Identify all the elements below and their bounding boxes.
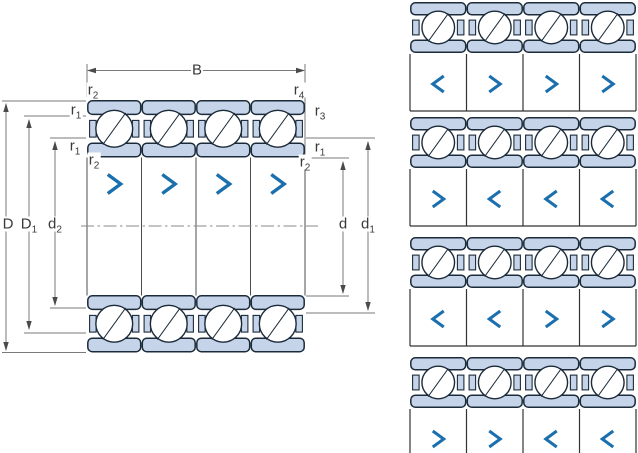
cage-section-right bbox=[457, 375, 464, 390]
bearing-unit-cross-section bbox=[467, 3, 522, 52]
bearing-drawing-svg bbox=[0, 0, 638, 453]
contact-angle-chevron-left bbox=[602, 191, 613, 207]
arrangement-row-2 bbox=[410, 118, 636, 226]
cage-section-right bbox=[627, 20, 634, 35]
contact-angle-chevron-left bbox=[546, 431, 557, 447]
contact-angle-chevron-right bbox=[271, 175, 284, 194]
cage-section-left bbox=[582, 20, 589, 35]
cage-section-right bbox=[514, 255, 521, 270]
cage-section-left bbox=[90, 120, 97, 137]
contact-angle-chevron-right bbox=[433, 191, 444, 207]
bearing-unit-cross-section bbox=[411, 238, 466, 287]
cage-section-left bbox=[526, 255, 533, 270]
cage-section-right bbox=[296, 315, 303, 332]
cage-section-left bbox=[253, 315, 260, 332]
bearing-unit-cross-section bbox=[88, 101, 141, 157]
cage-section-left bbox=[144, 315, 151, 332]
bearing-unit-cross-section bbox=[524, 3, 579, 52]
cage-section-right bbox=[457, 255, 464, 270]
arrangement-diagrams bbox=[410, 3, 636, 453]
bearing-unit-cross-section bbox=[524, 238, 579, 287]
cage-section-right bbox=[132, 315, 139, 332]
cage-section-right bbox=[457, 20, 464, 35]
cage-section-right bbox=[570, 135, 577, 150]
contact-angle-chevron-left bbox=[489, 191, 500, 207]
cage-section-right bbox=[627, 255, 634, 270]
cage-section-right bbox=[457, 135, 464, 150]
cage-section-right bbox=[570, 255, 577, 270]
contact-angle-chevron-right bbox=[217, 175, 230, 194]
cage-section-right bbox=[187, 120, 194, 137]
cage-section-right bbox=[187, 315, 194, 332]
cage-section-left bbox=[199, 120, 206, 137]
cage-section-left bbox=[469, 135, 476, 150]
contact-angle-chevron-left bbox=[433, 311, 444, 327]
arrangement-row-3 bbox=[410, 238, 636, 346]
contact-angle-chevron-right bbox=[546, 311, 557, 327]
cage-section-left bbox=[413, 375, 420, 390]
cage-section-left bbox=[582, 375, 589, 390]
cage-section-right bbox=[570, 375, 577, 390]
bearing-figure-page: { "figure": { "kind": "angular-contact-b… bbox=[0, 0, 638, 453]
bearing-unit-cross-section bbox=[88, 296, 141, 352]
contact-angle-chevron-right bbox=[546, 76, 557, 92]
bearing-unit-cross-section bbox=[467, 358, 522, 407]
arrangement-row-4 bbox=[410, 358, 636, 453]
bearing-unit-cross-section bbox=[524, 118, 579, 167]
bearing-unit-cross-section bbox=[142, 101, 195, 157]
contact-angle-chevron-right bbox=[602, 311, 613, 327]
bearing-unit-cross-section bbox=[197, 101, 250, 157]
bearing-unit-cross-section bbox=[142, 296, 195, 352]
bearing-unit-cross-section bbox=[411, 3, 466, 52]
cage-section-left bbox=[469, 20, 476, 35]
cage-section-right bbox=[627, 135, 634, 150]
bearing-unit-cross-section bbox=[580, 238, 635, 287]
contact-angle-chevron-right bbox=[602, 76, 613, 92]
bearing-unit-cross-section bbox=[411, 358, 466, 407]
cage-section-left bbox=[582, 135, 589, 150]
cage-section-left bbox=[526, 135, 533, 150]
cage-section-right bbox=[241, 315, 248, 332]
cage-section-right bbox=[570, 20, 577, 35]
cage-section-left bbox=[469, 255, 476, 270]
cage-section-left bbox=[526, 375, 533, 390]
cage-section-left bbox=[90, 315, 97, 332]
cage-section-left bbox=[413, 135, 420, 150]
contact-angle-chevron-right bbox=[162, 175, 175, 194]
contact-angle-chevron-right bbox=[433, 431, 444, 447]
bearing-unit-cross-section bbox=[580, 358, 635, 407]
cage-section-left bbox=[526, 20, 533, 35]
cage-section-left bbox=[144, 120, 151, 137]
bearing-unit-cross-section bbox=[467, 238, 522, 287]
contact-angle-chevron-left bbox=[433, 76, 444, 92]
bearing-unit-cross-section bbox=[580, 3, 635, 52]
cage-section-right bbox=[132, 120, 139, 137]
bearing-unit-cross-section bbox=[197, 296, 250, 352]
bearing-unit-cross-section bbox=[467, 118, 522, 167]
cross-section-diagram bbox=[2, 64, 375, 353]
contact-angle-chevron-right bbox=[108, 175, 121, 194]
cage-section-right bbox=[296, 120, 303, 137]
cage-section-left bbox=[253, 120, 260, 137]
cage-section-left bbox=[582, 255, 589, 270]
bearing-unit-cross-section bbox=[251, 101, 304, 157]
cage-section-left bbox=[413, 255, 420, 270]
cage-section-left bbox=[469, 375, 476, 390]
contact-angle-chevron-left bbox=[546, 191, 557, 207]
bearing-unit-cross-section bbox=[411, 118, 466, 167]
bearing-unit-cross-section bbox=[251, 296, 304, 352]
cage-section-right bbox=[514, 20, 521, 35]
cage-section-right bbox=[241, 120, 248, 137]
cage-section-left bbox=[413, 20, 420, 35]
cage-section-right bbox=[514, 375, 521, 390]
bearing-unit-cross-section bbox=[580, 118, 635, 167]
contact-angle-chevron-left bbox=[602, 431, 613, 447]
cage-section-right bbox=[627, 375, 634, 390]
bearing-unit-cross-section bbox=[524, 358, 579, 407]
contact-angle-chevron-right bbox=[489, 76, 500, 92]
contact-angle-chevron-right bbox=[489, 431, 500, 447]
cage-section-left bbox=[199, 315, 206, 332]
contact-angle-chevron-left bbox=[489, 311, 500, 327]
cage-section-right bbox=[514, 135, 521, 150]
arrangement-row-1 bbox=[410, 3, 636, 111]
